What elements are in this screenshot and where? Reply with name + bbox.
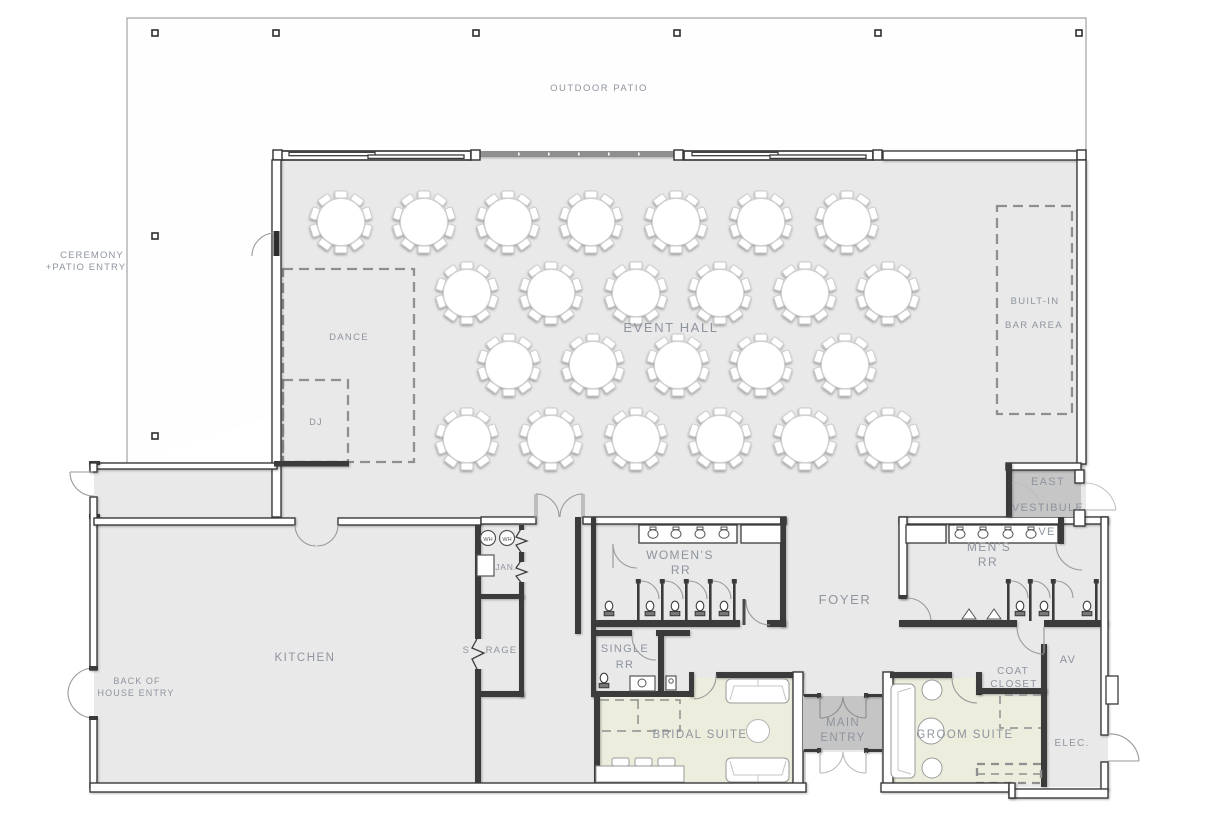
svg-text:RR: RR — [616, 659, 635, 671]
svg-text:+PATIO ENTRY: +PATIO ENTRY — [46, 262, 127, 273]
svg-text:BRIDAL SUITE: BRIDAL SUITE — [653, 729, 748, 741]
svg-text:RR: RR — [978, 555, 998, 569]
svg-text:GROOM SUITE: GROOM SUITE — [916, 729, 1013, 741]
svg-text:RR: RR — [671, 563, 691, 577]
svg-text:SINGLE: SINGLE — [601, 643, 649, 655]
svg-text:OUTDOOR PATIO: OUTDOOR PATIO — [550, 83, 648, 94]
svg-text:CLOSET: CLOSET — [990, 679, 1037, 690]
svg-text:MEN’S: MEN’S — [967, 540, 1011, 554]
svg-text:WOMEN’S: WOMEN’S — [646, 548, 714, 562]
svg-text:BAR AREA: BAR AREA — [1005, 320, 1063, 331]
svg-text:DANCE: DANCE — [329, 332, 369, 343]
svg-text:HOUSE ENTRY: HOUSE ENTRY — [98, 688, 175, 698]
svg-text:DJ: DJ — [309, 417, 322, 427]
svg-text:AV: AV — [1060, 654, 1076, 666]
svg-text:WH: WH — [502, 537, 511, 543]
svg-text:KITCHEN: KITCHEN — [275, 652, 336, 664]
svg-text:COAT: COAT — [997, 666, 1029, 677]
svg-text:WH: WH — [483, 537, 492, 543]
svg-text:ENTRY: ENTRY — [820, 732, 865, 744]
svg-text:BACK OF: BACK OF — [113, 676, 160, 686]
svg-text:CEREMONY: CEREMONY — [60, 250, 124, 261]
svg-text:EVENT HALL: EVENT HALL — [623, 320, 718, 335]
svg-text:BUILT-IN: BUILT-IN — [1011, 296, 1060, 307]
svg-text:VESTIBULE: VESTIBULE — [1012, 502, 1084, 514]
svg-text:JAN.: JAN. — [495, 562, 517, 572]
svg-text:ELEC.: ELEC. — [1055, 738, 1090, 749]
svg-text:STORAGE: STORAGE — [463, 645, 518, 656]
svg-text:EAST: EAST — [1031, 476, 1065, 488]
svg-text:MAIN: MAIN — [826, 717, 860, 729]
svg-text:VE: VE — [1038, 526, 1055, 538]
svg-text:FOYER: FOYER — [819, 592, 872, 607]
